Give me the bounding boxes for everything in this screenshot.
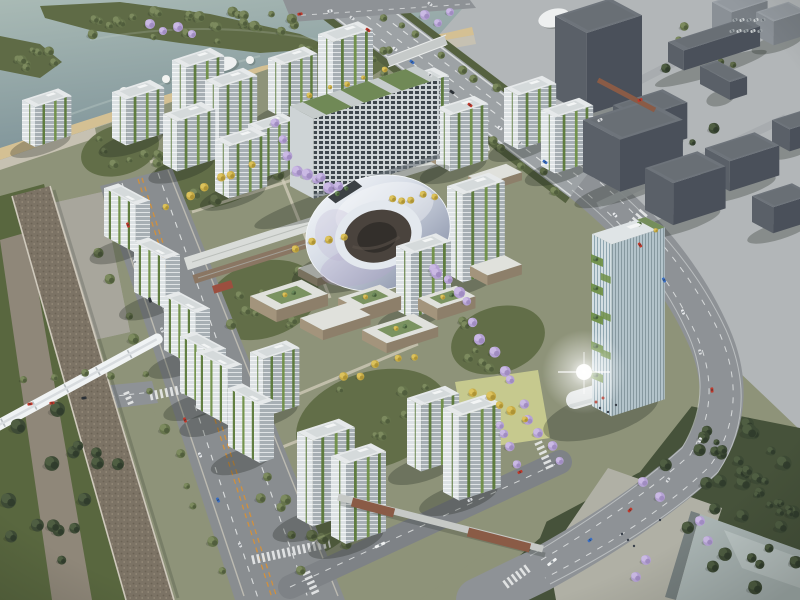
render-canvas [0, 0, 800, 600]
aerial-city-render [0, 0, 800, 600]
vignette [0, 0, 800, 600]
